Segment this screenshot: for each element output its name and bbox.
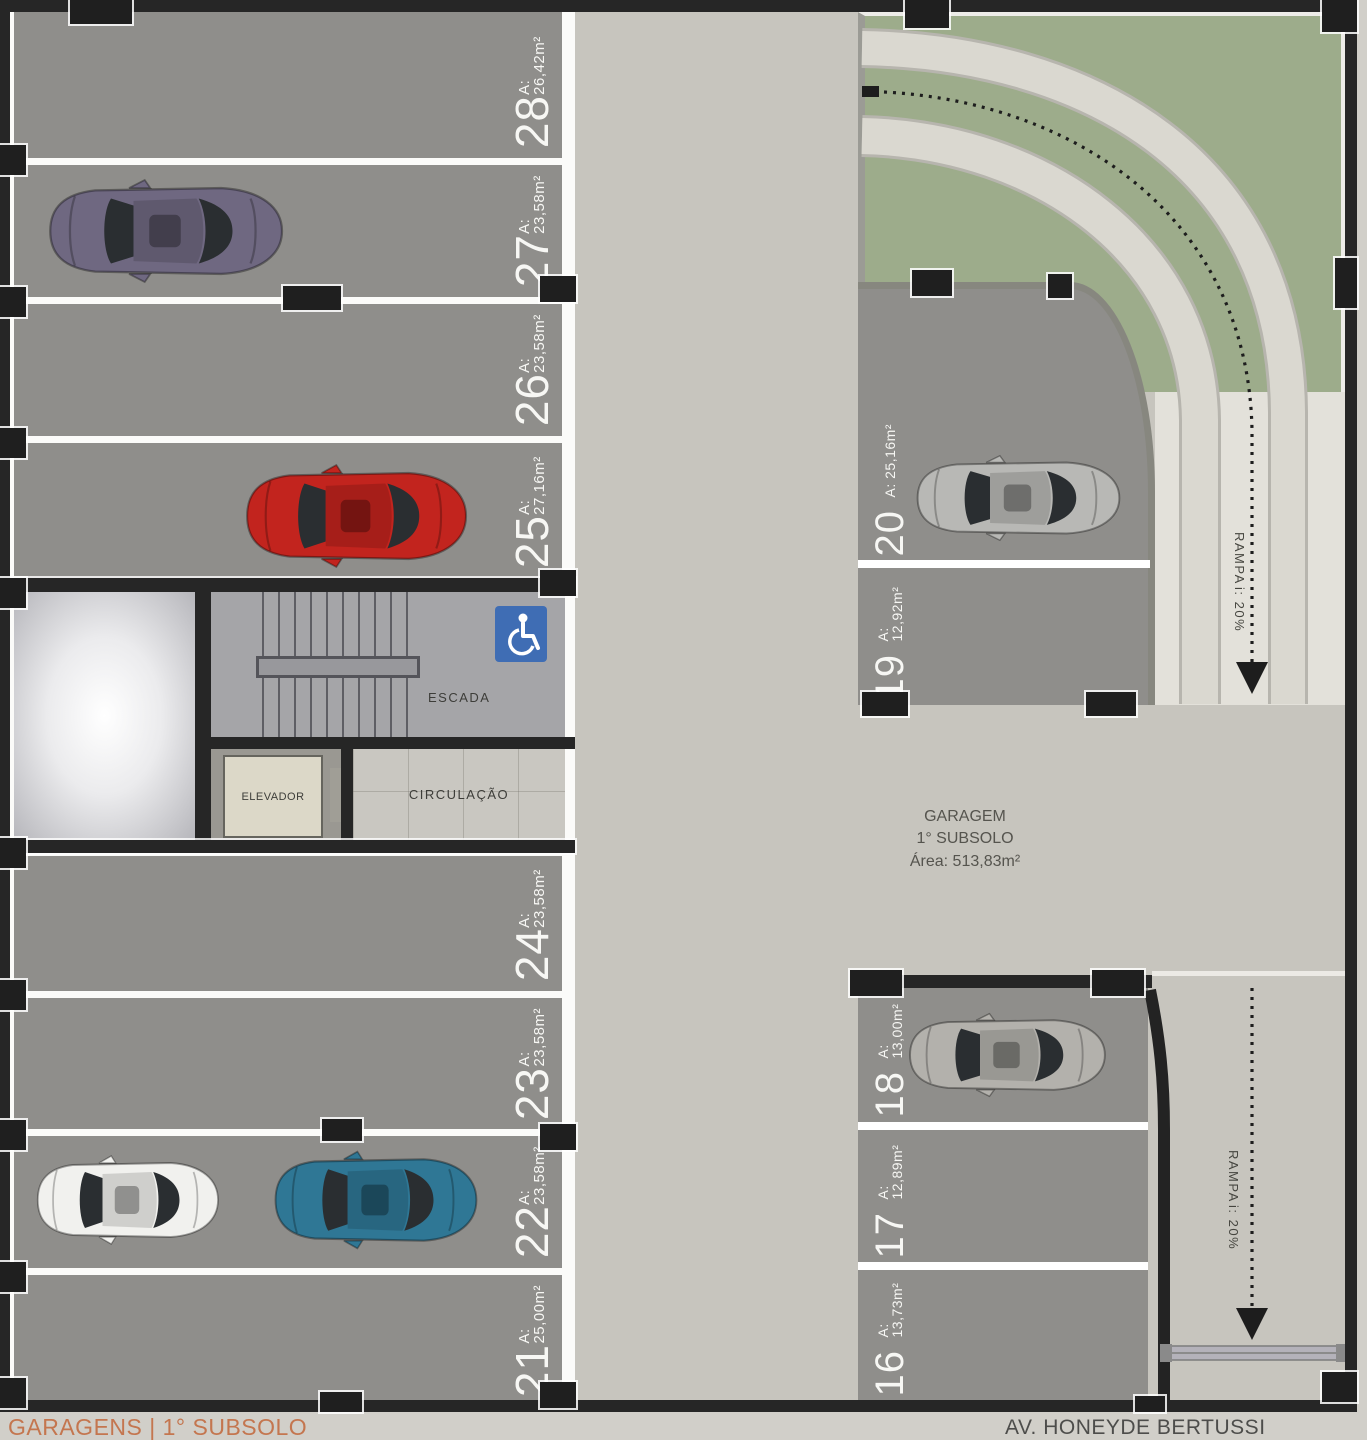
- column: [320, 1392, 362, 1412]
- car-space-20: [900, 450, 1135, 546]
- car-space-18: [893, 1008, 1120, 1102]
- column: [0, 1120, 26, 1150]
- path-start-marker: [862, 86, 879, 97]
- plan-title: GARAGENS | 1° SUBSOLO: [8, 1414, 307, 1440]
- column: [1092, 970, 1144, 996]
- car-space-27: [30, 173, 300, 289]
- column: [540, 276, 576, 302]
- car-space-22-white: [22, 1150, 232, 1250]
- column: [1335, 258, 1357, 308]
- column: [1086, 692, 1136, 716]
- wall-right: [1345, 0, 1357, 1412]
- wall-top: [0, 0, 1357, 12]
- arrow-down-icon: [1236, 1308, 1268, 1340]
- bay-18-curved-wall: [1150, 990, 1164, 1400]
- column: [0, 1262, 26, 1292]
- column: [1048, 274, 1072, 298]
- column: [1322, 0, 1357, 32]
- column: [862, 692, 908, 716]
- street-label: AV. HONEYDE BERTUSSI: [1005, 1416, 1266, 1440]
- column: [0, 980, 26, 1010]
- wall-left: [0, 0, 10, 1412]
- column: [322, 1119, 362, 1141]
- column: [0, 578, 26, 608]
- column: [912, 270, 952, 296]
- arrow-down-icon: [1236, 662, 1268, 694]
- column: [1322, 1372, 1357, 1402]
- car-space-25: [228, 458, 483, 574]
- column: [540, 1382, 576, 1408]
- floor-plan: A: 25,16m² 20 A: 12,92m² 19 A: 26,42m²28…: [0, 0, 1367, 1440]
- ramp-path-top: [884, 92, 1252, 662]
- column: [0, 145, 26, 175]
- column: [905, 0, 949, 28]
- column: [283, 286, 341, 310]
- column: [0, 838, 26, 868]
- column: [0, 287, 26, 317]
- garage-gate: [1160, 1344, 1348, 1362]
- column: [0, 428, 26, 458]
- column: [0, 1378, 26, 1408]
- column: [1135, 1396, 1165, 1412]
- column: [540, 1124, 576, 1150]
- car-space-22-blue: [258, 1145, 492, 1255]
- column: [70, 0, 132, 24]
- column: [540, 570, 576, 596]
- column: [850, 970, 902, 996]
